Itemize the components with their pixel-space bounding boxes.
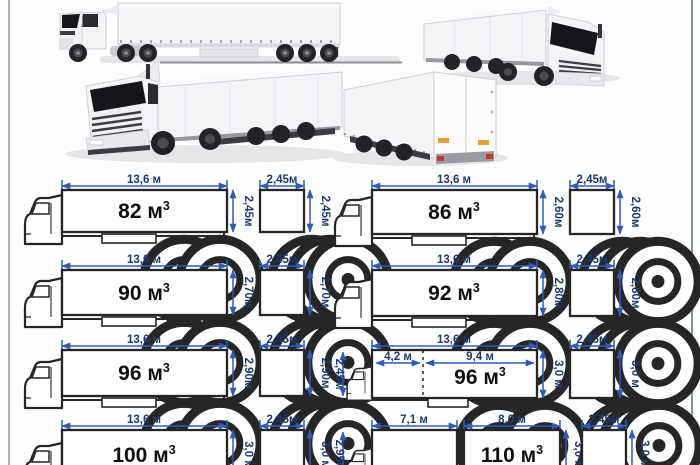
section-width: 2,45м [577,334,608,346]
semi-truck-rear-three-quarter [332,72,508,166]
length-dimension: 13,6 м [127,334,161,346]
cross-section: 2,45м 3,0 м [582,414,650,465]
truck-cab-drawing [25,443,62,465]
section-height: 3,0 м [629,360,641,388]
cross-section: 2,45м 2,60м [570,174,641,234]
section-height: 3,0 м [638,440,650,465]
length-dimension: 13,6 м [127,254,161,266]
cross-section: 2,45м 3,0 м [570,334,641,398]
cross-section: 2,45м 2,90м [260,334,331,396]
volume-label: 100 м3 [112,443,175,465]
volume-label: 90 м3 [118,281,170,305]
front-length-dimension: 7,1 м [400,414,428,426]
truck-cab-drawing [335,279,372,328]
volume-label: 92 м3 [428,281,480,305]
cross-section: 2,45м 3,0 м [260,414,331,465]
height-dimension: 2,80м [552,278,564,309]
length-dimension: 13,6 м [127,174,161,186]
truck-cab-drawing [25,359,62,408]
semi-truck-side-view [59,3,402,63]
section-width: 2,45м [267,414,298,426]
cross-section: 2,45м 2,45м [260,174,331,232]
cab-height-dimension: 2,45м [333,359,345,390]
diagram-110-road-train: 7,1 м 8,0 м 2,95м 3,0 м 110 м3 2,45м 3,0… [330,412,642,465]
diagram-100: 13,6 м 3,0 м 100 м3 2,45м 3,0 м [20,412,330,465]
cross-section: 2,45м 2,70м [260,254,331,315]
section-width: 2,45м [577,254,608,266]
section-width: 2,45м [267,334,298,346]
truck-volumes-infographic: 13,6 м 2,45м 82 м3 2,45м 2,45м 13,6 м 2,… [0,0,700,465]
cab-height-dimension: 2,95м [333,440,345,465]
section-width: 2,45м [267,174,298,186]
cross-section: 2,45м 2,80м [570,254,641,316]
section-width: 2,45м [589,414,620,426]
height-dimension: 2,90м [242,358,254,389]
truck-cab-drawing [335,197,372,246]
truck-cab-drawing [347,448,373,465]
truck-cab-drawing [25,195,62,244]
truck-photos-illustration [0,0,700,172]
section-height: 2,60м [629,197,641,228]
height-dimension: 2,45м [242,196,254,227]
section-width: 2,45м [577,174,608,186]
volume-label: 96 м3 [118,361,170,385]
length-dimension: 13,6 м [437,254,471,266]
semi-truck-front-three-quarter-left [65,61,345,163]
volume-label: 110 м3 [481,443,543,465]
length-dimension: 13,6 м [437,334,471,346]
height-dimension: 3,0 м [552,360,564,388]
section-height: 2,80м [629,278,641,309]
height-dimension: 3,0 м [242,441,254,465]
rear-length-dimension: 8,0 м [498,414,526,426]
truck-body-box [372,430,457,465]
rear-length-dimension: 9,4 м [466,351,494,363]
height-dimension: 2,60м [552,197,564,228]
height-dimension: 2,70м [242,277,254,308]
truck-cab-drawing [25,278,62,327]
volume-label: 82 м3 [118,199,170,223]
front-length-dimension: 4,2 м [384,351,412,363]
volume-label: 96 м3 [454,365,506,389]
length-dimension: 13,6 м [437,174,471,186]
volume-label: 86 м3 [428,200,480,224]
length-dimension: 13,6 м [127,414,161,426]
truck-cab-drawing [347,366,373,400]
section-width: 2,45м [267,254,298,266]
